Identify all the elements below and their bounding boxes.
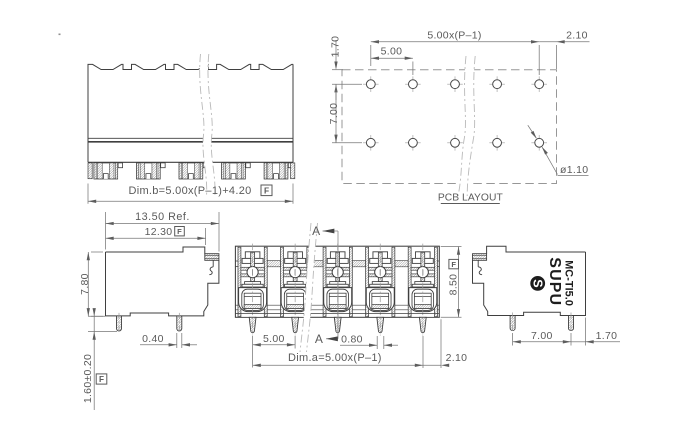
svg-text:2.10: 2.10 xyxy=(566,29,588,41)
svg-text:S: S xyxy=(530,279,544,287)
svg-text:Dim.b=5.00x(P–1)+4.20: Dim.b=5.00x(P–1)+4.20 xyxy=(128,185,251,197)
svg-text:MC-TI5.0: MC-TI5.0 xyxy=(563,260,575,306)
svg-text:A: A xyxy=(312,224,320,238)
svg-text:5.00: 5.00 xyxy=(263,333,285,345)
svg-text:7.80: 7.80 xyxy=(79,273,91,295)
svg-text:Dim.a=5.00x(P–1): Dim.a=5.00x(P–1) xyxy=(288,352,382,364)
svg-text:SUPU: SUPU xyxy=(546,257,563,306)
svg-text:PCB LAYOUT: PCB LAYOUT xyxy=(438,192,504,203)
svg-text:A: A xyxy=(315,332,323,346)
svg-text:1.60±0.20: 1.60±0.20 xyxy=(82,354,94,403)
svg-text:5.00: 5.00 xyxy=(381,46,403,58)
svg-text:1.70: 1.70 xyxy=(596,330,618,342)
svg-text:8.50: 8.50 xyxy=(447,274,459,296)
svg-text:5.00x(P–1): 5.00x(P–1) xyxy=(427,29,481,41)
svg-text:F: F xyxy=(264,185,269,195)
svg-text:ø1.10: ø1.10 xyxy=(560,164,588,176)
svg-text:F: F xyxy=(451,260,456,269)
svg-text:0.40: 0.40 xyxy=(142,333,164,345)
svg-text:12.30: 12.30 xyxy=(145,226,173,238)
svg-text:0.80: 0.80 xyxy=(341,333,363,345)
svg-text:7.00: 7.00 xyxy=(531,330,553,342)
svg-text:13.50 Ref.: 13.50 Ref. xyxy=(135,211,190,223)
svg-text:7.00: 7.00 xyxy=(328,103,340,125)
svg-text:2.10: 2.10 xyxy=(446,352,468,364)
svg-text:F: F xyxy=(177,227,182,236)
svg-text:1.70: 1.70 xyxy=(330,36,342,58)
svg-text:F: F xyxy=(99,375,104,384)
